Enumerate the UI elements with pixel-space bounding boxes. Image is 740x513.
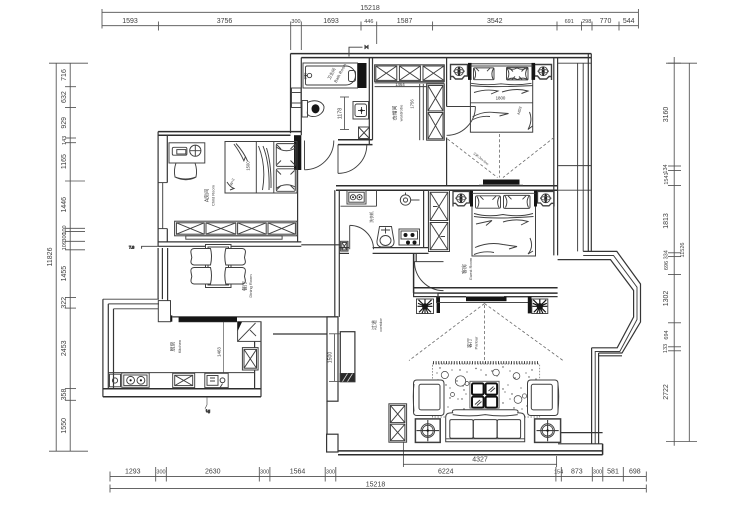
svg-text:Dining Room: Dining Room [248,274,253,298]
svg-text:154: 154 [554,470,563,476]
svg-text:15218: 15218 [360,5,380,12]
svg-text:1500: 1500 [328,352,334,364]
svg-text:300: 300 [260,470,269,476]
svg-text:1463: 1463 [217,347,222,357]
svg-text:544: 544 [623,18,635,25]
svg-text:7.8: 7.8 [129,246,134,250]
svg-text:3542: 3542 [487,18,503,25]
svg-text:716: 716 [61,69,68,81]
svg-text:1564: 1564 [290,469,306,476]
svg-text:A房间: A房间 [204,189,211,202]
svg-text:300: 300 [291,19,300,25]
svg-text:873: 873 [571,469,583,476]
svg-text:109: 109 [62,241,68,250]
svg-text:134: 134 [663,164,669,173]
svg-text:1302: 1302 [663,291,670,307]
svg-text:客厅: 客厅 [467,338,474,348]
svg-text:衣帽间: 衣帽间 [392,105,399,120]
svg-text:6224: 6224 [438,469,454,476]
svg-text:300: 300 [593,470,602,476]
svg-text:632: 632 [61,91,68,103]
svg-text:15218: 15218 [366,482,386,489]
svg-text:2630: 2630 [205,469,221,476]
svg-text:691: 691 [565,19,574,25]
svg-text:322: 322 [61,297,68,309]
svg-text:929: 929 [61,117,68,129]
svg-text:2453: 2453 [61,340,68,356]
svg-text:1587: 1587 [397,18,413,25]
svg-text:300: 300 [326,470,335,476]
svg-text:过道: 过道 [371,320,378,330]
svg-text:1165: 1165 [61,154,68,169]
svg-text:11826: 11826 [47,247,54,266]
svg-text:洗衣机: 洗衣机 [369,211,374,223]
svg-text:1813: 1813 [663,213,670,229]
svg-text:698: 698 [629,469,641,476]
svg-text:300: 300 [62,232,68,241]
svg-text:wardrobe: wardrobe [399,104,404,121]
svg-text:1541: 1541 [664,172,670,184]
svg-text:客房: 客房 [461,264,468,274]
svg-text:Guest Room: Guest Room [468,257,473,280]
svg-text:1550: 1550 [61,418,68,434]
svg-text:t.g: t.g [206,409,210,413]
svg-text:446: 446 [364,19,373,25]
svg-text:1293: 1293 [125,469,141,476]
svg-text:770: 770 [600,18,612,25]
svg-text:2722: 2722 [663,384,670,400]
svg-text:1593: 1593 [122,18,138,25]
svg-text:696: 696 [664,261,670,270]
svg-text:1693: 1693 [323,18,339,25]
svg-text:corridor: corridor [378,318,383,332]
svg-text:1446: 1446 [61,197,68,213]
svg-text:Child Room: Child Room [211,184,216,206]
svg-text:800: 800 [303,72,308,79]
svg-text:Parlour: Parlour [474,336,479,350]
svg-text:300: 300 [156,470,165,476]
svg-text:581: 581 [607,469,619,476]
svg-text:1500: 1500 [246,161,251,171]
svg-text:1756: 1756 [410,99,415,109]
svg-text:133: 133 [663,344,669,353]
svg-text:694: 694 [664,330,670,339]
svg-text:1800: 1800 [496,96,506,101]
svg-text:1464: 1464 [395,82,405,87]
svg-text:Kitchen: Kitchen [177,340,182,353]
svg-text:358: 358 [61,389,68,401]
svg-text:3160: 3160 [663,107,670,123]
svg-text:1455: 1455 [61,266,68,282]
svg-text:3756: 3756 [217,18,233,25]
svg-text:4327: 4327 [472,457,488,464]
svg-text:1178: 1178 [338,108,344,120]
svg-text:厨房: 厨房 [170,341,177,351]
svg-text:334: 334 [664,250,670,259]
svg-text:11526: 11526 [680,243,686,258]
svg-text:298: 298 [582,19,591,25]
svg-text:143: 143 [62,136,68,145]
